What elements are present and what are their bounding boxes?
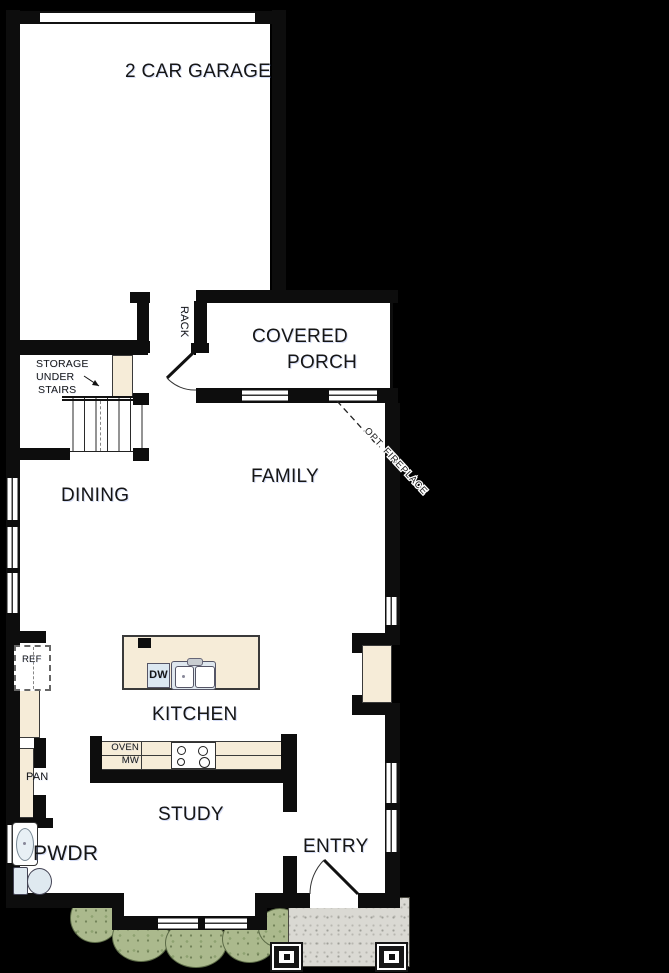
room-label-powder: PWDR (33, 843, 98, 865)
toilet-bowl (27, 868, 52, 895)
sink-drain (182, 675, 185, 678)
oven-label: OVEN (103, 743, 139, 754)
toilet-tank (13, 867, 28, 895)
toilet (13, 866, 51, 894)
window (385, 810, 400, 852)
stair-closet (112, 355, 133, 397)
wall-segment (20, 631, 46, 643)
refrigerator-label: REF (22, 655, 42, 666)
kitchen-sink (171, 661, 216, 690)
window (242, 389, 288, 402)
garage-door (40, 11, 255, 24)
burner (198, 746, 208, 756)
window (385, 597, 400, 625)
window (6, 527, 20, 568)
wall-segment (196, 290, 398, 303)
window (6, 478, 20, 520)
room-label-porch: PORCH (287, 353, 357, 373)
room-label-kitchen: KITCHEN (152, 705, 238, 725)
wall-segment (385, 715, 400, 895)
dishwasher: DW (147, 663, 170, 688)
burner (177, 746, 186, 755)
storage-label-line3: STAIRS (38, 384, 76, 396)
stair-newel (133, 448, 149, 461)
porch-column (270, 942, 303, 972)
kitchen-island: DW (122, 635, 260, 690)
stairs (62, 396, 143, 452)
wall-segment (272, 10, 286, 302)
floor-plan: DW OVEN MW 2 CAR GARAGE COVERED (0, 0, 669, 973)
room-label-garage: 2 CAR GARAGE (125, 62, 271, 82)
basin-drain (23, 842, 26, 845)
window (6, 573, 20, 613)
refrigerator (14, 645, 51, 691)
wall-segment (283, 770, 297, 812)
faucet (187, 658, 203, 666)
island-post (138, 638, 151, 648)
stair-newel (133, 393, 149, 405)
window (329, 389, 377, 402)
wall-segment (265, 893, 310, 908)
storage-label-line1: STORAGE (36, 358, 89, 370)
wall-segment (90, 770, 290, 783)
dishwasher-label: DW (149, 669, 168, 682)
bay-interior (112, 893, 267, 918)
wall-segment (34, 738, 46, 768)
wall-segment (194, 301, 207, 345)
room-label-study: STUDY (158, 805, 224, 825)
rack-label: RACK (177, 306, 190, 337)
entry-door-opening (310, 893, 358, 908)
pantry-label: PAN (26, 771, 48, 784)
wall-segment (6, 448, 70, 460)
wall-segment (6, 893, 112, 908)
window (385, 763, 400, 803)
microwave-label: MW (103, 756, 139, 767)
wall-segment (33, 795, 46, 820)
porch-edge (390, 303, 393, 390)
burner (177, 758, 185, 766)
wall-segment (358, 893, 400, 908)
wall-segment (137, 303, 149, 343)
wall-segment (130, 292, 150, 303)
storage-label-line2: UNDER (36, 371, 74, 383)
burner (199, 757, 210, 768)
kitchen-counter: OVEN MW (100, 741, 282, 770)
wall-segment (6, 340, 148, 355)
room-label-dining: DINING (61, 486, 129, 506)
wall-segment (283, 856, 297, 896)
wall-segment (191, 343, 209, 353)
wall-segment (352, 633, 362, 653)
sink-bowl (195, 666, 215, 688)
window (205, 917, 247, 929)
wall-segment (352, 695, 362, 715)
porch-column (375, 942, 408, 972)
room-label-entry: ENTRY (303, 837, 369, 857)
room-label-covered: COVERED (252, 327, 348, 347)
room-label-family: FAMILY (251, 467, 319, 487)
wall-segment (130, 341, 150, 353)
window (158, 917, 198, 929)
media-cabinet (362, 645, 392, 703)
cooktop (171, 742, 216, 769)
